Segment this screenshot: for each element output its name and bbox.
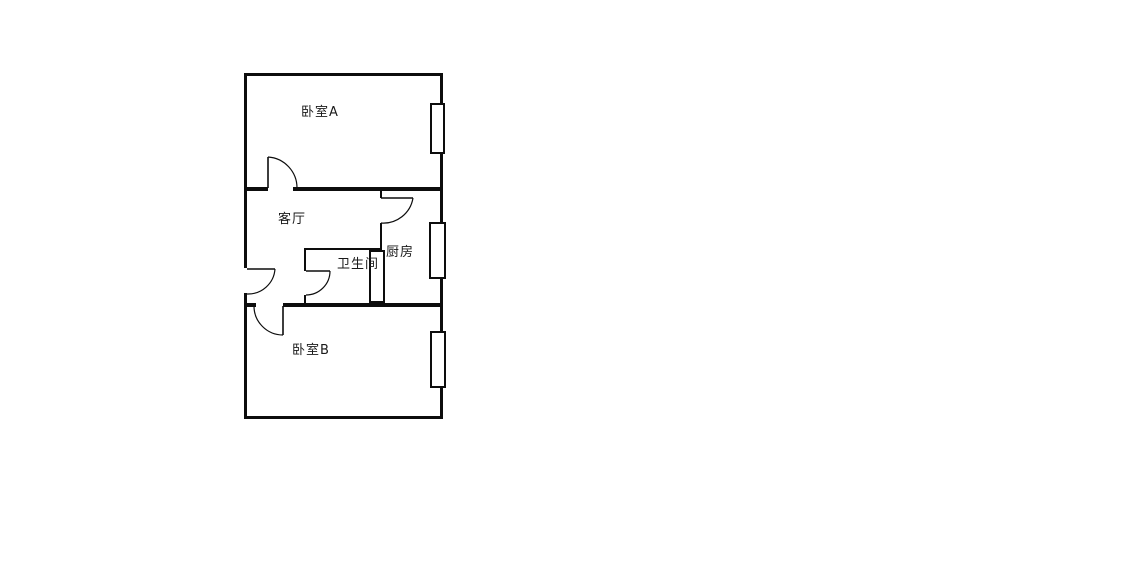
kitchen-window-icon [430,223,445,278]
wall-middle-right-of-door [283,303,441,307]
bathroom-wall-top [304,248,381,250]
bathroom-door-swing-arc [306,271,330,295]
entry-door-swing-arc [247,269,275,294]
wall-bedroomA-right-of-door [293,187,441,191]
bedroom-a-door-swing-arc [268,157,297,188]
bedroom-b-door-swing-arc [254,306,283,335]
kitchen-door-swing-arc [381,198,413,223]
bedroom-b-window-icon [431,332,445,387]
room-label-kitchen: 厨房 [386,246,414,260]
outer-wall-bottom [244,416,443,419]
room-label-bedroom-a: 卧室A [301,106,339,120]
outer-wall-left-lower [244,293,247,419]
room-label-bathroom: 卫生间 [337,258,379,272]
wall-bedroomA-left-of-door [246,187,268,191]
room-label-bedroom-b: 卧室B [292,344,330,358]
floor-plan-drawing [0,0,1125,577]
outer-wall-top [244,73,443,76]
floorplan-page: 卧室A 客厅 厨房 卫生间 卧室B [0,0,1125,577]
bedroom-a-window-icon [431,104,444,153]
kitchen-divider-upper-stub [380,191,382,198]
kitchen-divider-lower [380,223,382,250]
outer-wall-left-upper [244,73,247,268]
bathroom-wall-left-stub [304,295,306,303]
room-label-living-room: 客厅 [278,213,306,227]
bathroom-wall-left-upper [304,250,306,271]
